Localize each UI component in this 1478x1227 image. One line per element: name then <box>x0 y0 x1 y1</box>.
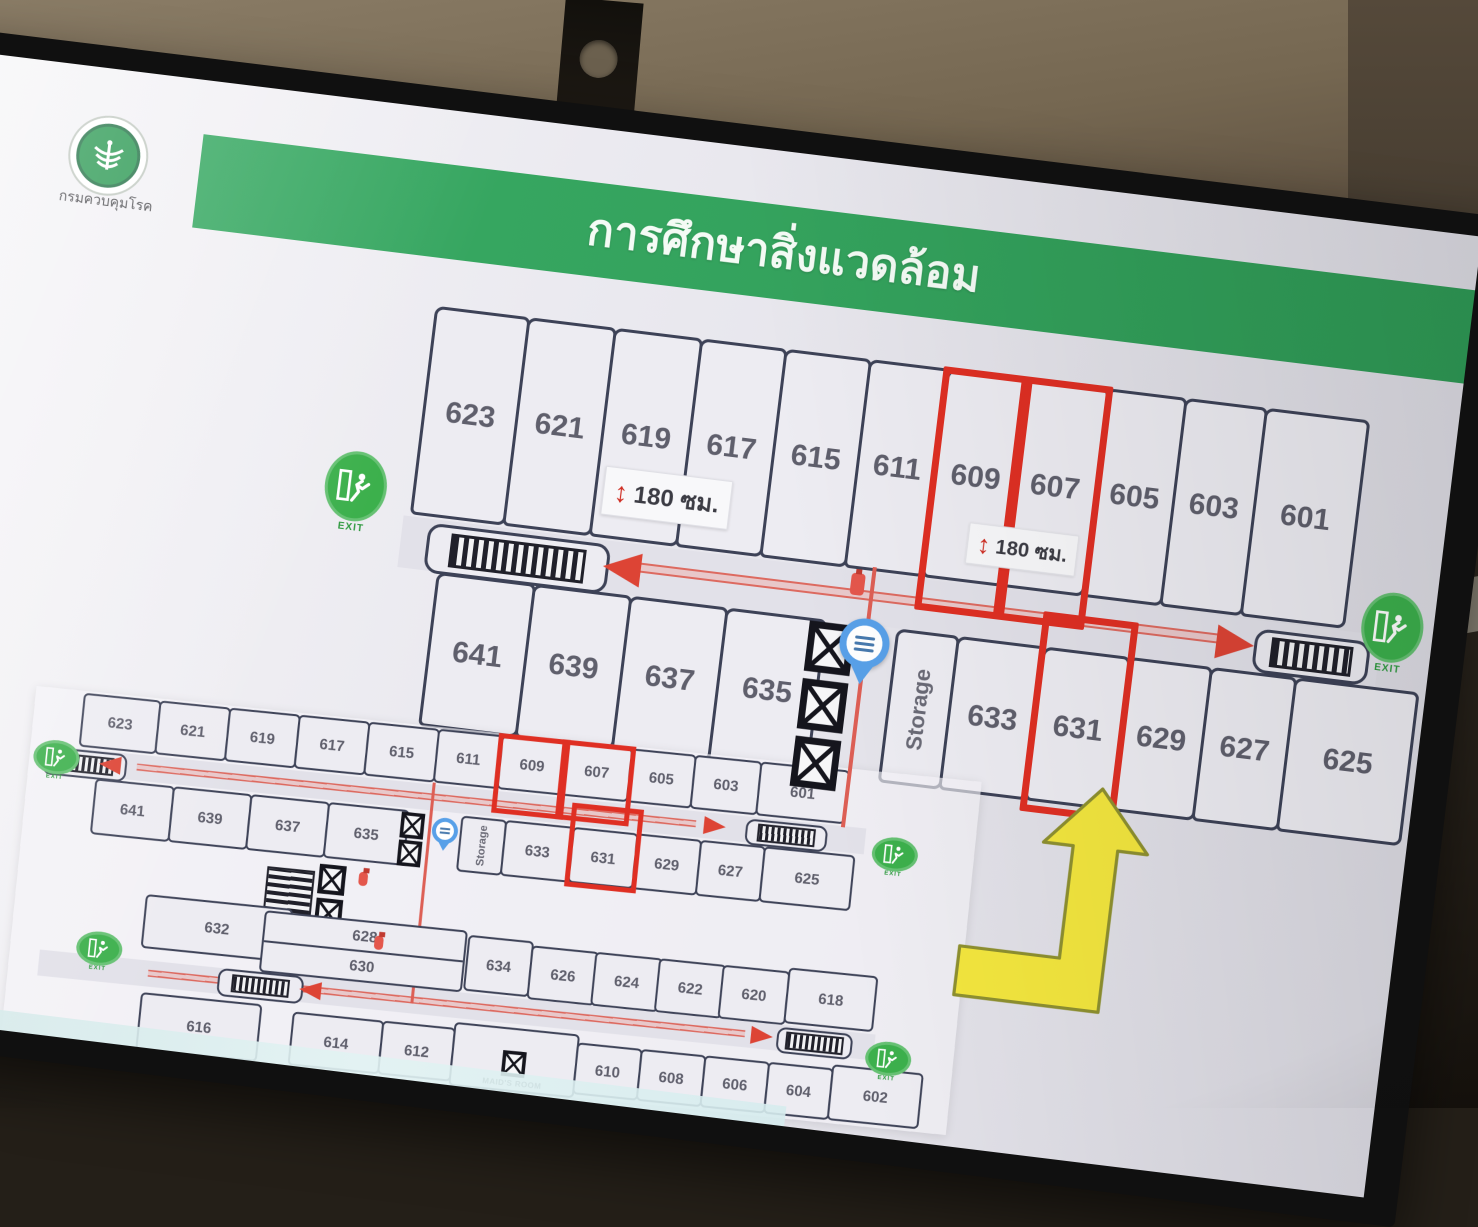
room-629: 629 <box>631 833 702 895</box>
elevator-icon <box>789 733 841 794</box>
double-arrow-icon: ↕ <box>612 477 629 506</box>
ddc-logo-icon <box>73 120 144 191</box>
arrow-left-icon <box>98 755 122 775</box>
location-pin-icon <box>431 817 459 845</box>
exit-runner-icon <box>870 835 919 873</box>
arrow-right-icon <box>750 1026 774 1046</box>
room-637: 637 <box>245 794 330 858</box>
fire-extinguisher-icon <box>374 935 384 950</box>
arrow-left-icon <box>601 549 643 587</box>
arrow-right-icon <box>703 816 727 836</box>
elevator-icon <box>399 811 426 839</box>
room-611: 611 <box>433 729 504 789</box>
room-607-highlighted: 607 <box>560 742 633 803</box>
elevator-lobby <box>402 810 463 871</box>
exit-sign-left: EXIT <box>31 738 81 782</box>
exit-runner-icon <box>864 1040 913 1078</box>
exit-runner-icon <box>1357 589 1427 666</box>
exit-label: EXIT <box>1374 662 1401 676</box>
storage-label: Storage <box>474 825 490 867</box>
room-634: 634 <box>463 935 534 997</box>
up-arrow-icon <box>926 764 1183 1025</box>
elevator-icon <box>317 863 347 896</box>
clearance-text: 180 ซม. <box>632 474 722 523</box>
exit-sign-right: EXIT <box>863 1040 913 1084</box>
exit-sign-left: EXIT <box>319 448 391 537</box>
room-639: 639 <box>167 786 252 850</box>
room-620: 620 <box>717 965 790 1026</box>
storage-label: Storage <box>901 667 937 751</box>
room-603: 603 <box>689 755 762 816</box>
room-615: 615 <box>363 722 440 783</box>
arrow-right-icon <box>1214 624 1256 662</box>
room-618: 618 <box>783 967 878 1032</box>
exit-sign-left: EXIT <box>74 929 124 973</box>
exit-runner-icon <box>32 738 81 776</box>
stairs-right-icon <box>775 1027 853 1061</box>
room-622: 622 <box>654 958 727 1019</box>
arrow-left-icon <box>298 980 322 1000</box>
exit-sign-right: EXIT <box>1356 589 1428 678</box>
exit-label: EXIT <box>45 773 63 781</box>
room-641: 641 <box>90 778 175 842</box>
room-625: 625 <box>758 846 855 911</box>
room-617: 617 <box>294 715 371 776</box>
caduceus-icon <box>86 133 131 178</box>
fire-extinguisher-icon <box>358 871 368 886</box>
double-arrow-icon: ↕ <box>976 531 992 558</box>
clearance-text: 180 ซม. <box>994 530 1069 571</box>
room-605: 605 <box>626 748 697 808</box>
room-633: 633 <box>500 820 575 883</box>
room-627: 627 <box>695 840 766 902</box>
room-625: 625 <box>1276 677 1420 846</box>
room-624: 624 <box>590 952 663 1013</box>
room-631-highlighted: 631 <box>567 827 638 889</box>
tv-screen: กรมควบคุมโรค การศึกษาสิ่งแวดล้อม 623 621… <box>0 24 1478 1227</box>
photo-of-screen: กรมควบคุมโรค การศึกษาสิ่งแวดล้อม 623 621… <box>0 0 1478 1108</box>
presentation-slide: กรมควบคุมโรค การศึกษาสิ่งแวดล้อม 623 621… <box>0 49 1478 1197</box>
fire-extinguisher-icon <box>849 572 866 596</box>
exit-sign-right: EXIT <box>870 835 920 879</box>
room-623: 623 <box>79 693 162 755</box>
elevator-icon <box>396 839 423 867</box>
exit-runner-icon <box>321 448 391 525</box>
exit-runner-icon <box>75 929 124 967</box>
room-609-highlighted: 609 <box>496 735 567 795</box>
exit-label: EXIT <box>337 520 364 534</box>
room-621: 621 <box>154 700 231 761</box>
mount-hole <box>578 38 619 79</box>
elevator-icon <box>796 675 848 736</box>
exit-label: EXIT <box>884 871 902 879</box>
room-626: 626 <box>526 945 599 1006</box>
room-619: 619 <box>224 707 301 768</box>
org-name: กรมควบคุมโรค <box>31 182 181 222</box>
slide-title: การศึกษาสิ่งแวดล้อม <box>583 194 984 312</box>
